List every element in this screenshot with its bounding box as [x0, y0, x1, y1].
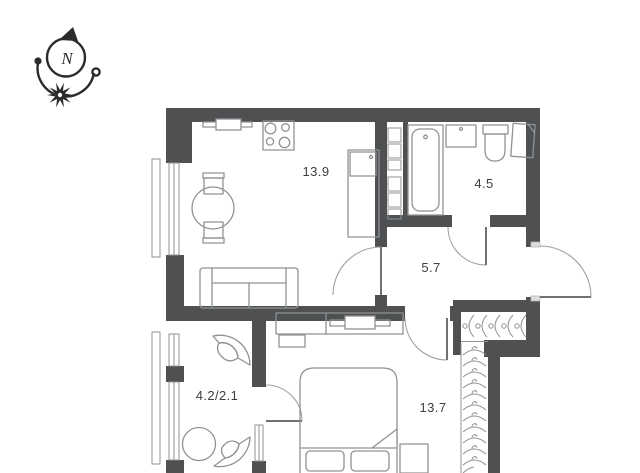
bathroom-sink	[446, 125, 476, 147]
entry-door-frame-bottom	[531, 296, 540, 301]
wall-balcony-divider-low	[252, 461, 266, 473]
wall-balcony-divider	[252, 321, 266, 387]
sun-center	[58, 93, 62, 97]
utility-shaft	[388, 128, 401, 219]
compass-north-label: N	[60, 49, 74, 68]
balcony-window-sill	[152, 332, 160, 464]
sofa	[200, 268, 298, 308]
pillow-left	[306, 451, 344, 471]
entry-door-swing	[540, 246, 591, 297]
room-area-label-bedroom: 13.7	[420, 400, 447, 415]
wall-closet-top	[453, 300, 540, 312]
wall-balcony-bottom	[166, 460, 184, 473]
balcony-table	[183, 428, 216, 461]
kitchen-door	[333, 247, 381, 295]
floor-plan: N	[0, 0, 640, 473]
wardrobe-hangers	[461, 343, 486, 473]
wall-top-left-pier	[166, 108, 192, 163]
balcony-door	[266, 385, 302, 421]
room-area-label-balcony: 4.2/2.1	[196, 388, 239, 403]
room-area-label-bathroom: 4.5	[474, 176, 493, 191]
bathtub	[408, 125, 443, 215]
room-area-label-hallway: 5.7	[421, 260, 440, 275]
stove	[263, 121, 294, 150]
wall-kitchen-bath-divider	[375, 122, 387, 247]
sunset-dot	[92, 68, 99, 75]
bathroom-door	[448, 227, 486, 265]
kitchen-window-sill	[152, 159, 160, 257]
bedroom-stool	[279, 335, 305, 347]
balcony-door-swing	[266, 385, 302, 421]
wall-bath-bottom-right	[490, 215, 526, 227]
kitchen-counter	[348, 150, 379, 237]
wall-bath-bottom-left	[375, 215, 452, 227]
bathroom-door-swing	[448, 227, 486, 265]
balcony: 4.2/2.1	[183, 335, 251, 466]
floor-plan-drawing: N	[0, 0, 640, 473]
blanket-fold	[372, 429, 397, 448]
room-area-label-kitchen-living: 13.9	[303, 164, 330, 179]
bedroom-door-swing	[405, 318, 447, 360]
entry-door-frame-top	[531, 242, 540, 247]
sunrise-dot	[34, 57, 41, 64]
walls	[166, 108, 540, 473]
wall-balcony-pier	[166, 366, 184, 382]
toilet	[483, 125, 508, 161]
nightstand	[400, 444, 428, 473]
double-bed	[300, 368, 397, 473]
bedroom-door	[405, 318, 447, 360]
compass-rose: N	[34, 27, 99, 107]
entry-door	[531, 242, 591, 301]
kitchen-door-swing	[333, 247, 381, 295]
lounge-chair-top	[213, 335, 250, 365]
kitchen-living-room: 13.9	[192, 119, 379, 308]
wall-closet-bottom	[484, 340, 540, 357]
dining-table	[192, 187, 234, 229]
wall-right-upper	[526, 108, 540, 247]
pillow-right	[351, 451, 389, 471]
dining-chair-top	[203, 173, 224, 194]
coat-closet-hangers	[461, 315, 526, 342]
wall-right-lower	[488, 357, 500, 473]
wall-closet-left	[453, 300, 461, 355]
doors	[266, 227, 591, 421]
wall-shaft-right	[403, 122, 408, 225]
kitchen-sink	[350, 152, 376, 176]
dining-chair-bottom	[203, 222, 224, 243]
bathroom: 4.5	[388, 123, 535, 219]
wall-divider-stub	[375, 295, 387, 308]
lounge-chair-bottom	[214, 437, 250, 467]
